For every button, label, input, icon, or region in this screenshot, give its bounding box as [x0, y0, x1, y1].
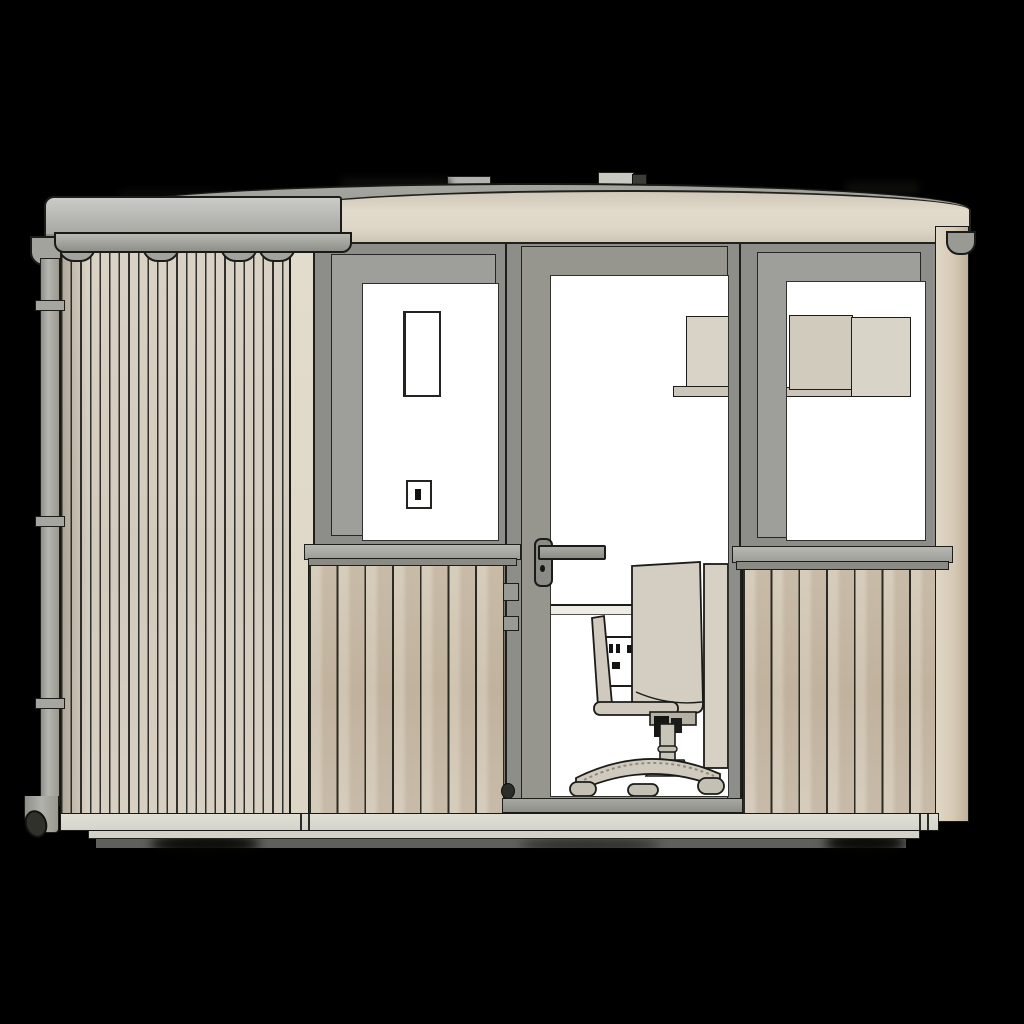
- interior-wall-cabinet: [686, 316, 729, 392]
- render-viewport: [0, 0, 1024, 1024]
- front-fascia: [283, 190, 971, 244]
- door-hinge: [503, 583, 519, 601]
- skirting-joint: [927, 814, 929, 830]
- skirting-joint: [919, 814, 921, 830]
- door-glass: [550, 275, 729, 797]
- light-switch-rocker: [415, 489, 421, 500]
- downpipe-clip: [35, 516, 65, 527]
- chair-seat-back: [632, 562, 703, 713]
- interior-wall-shelf: [673, 386, 729, 397]
- door-handle-lever: [538, 545, 606, 560]
- door-keyhole: [540, 565, 545, 572]
- left-window-apron-panel: [308, 564, 507, 817]
- downpipe: [40, 258, 60, 806]
- right-window-glass: [786, 281, 926, 541]
- chair-caster: [698, 778, 724, 794]
- right-window-sash: [757, 252, 921, 538]
- wall-cabinet-right-door: [851, 317, 911, 397]
- chair-armrest-post: [592, 616, 612, 706]
- chair-desk-slab: [704, 564, 728, 768]
- left-window-frame: [313, 236, 516, 548]
- skirting-joint: [308, 814, 310, 830]
- downpipe-clip: [35, 698, 65, 709]
- doorstop: [501, 783, 515, 799]
- chair-caster: [628, 784, 658, 796]
- left-window-sash: [331, 254, 496, 536]
- gutter-end-cap: [946, 231, 976, 255]
- wall-cabinet-left-door: [789, 315, 853, 390]
- light-switch: [406, 480, 432, 509]
- base-skirting: [60, 813, 939, 831]
- right-window-apron-panel: [742, 568, 939, 817]
- entrance-door-frame: [505, 230, 742, 814]
- office-chair: [568, 556, 728, 796]
- gutter: [54, 232, 352, 253]
- chair-gas-column: [660, 724, 675, 764]
- door-threshold: [502, 798, 743, 813]
- left-window-subsill: [308, 558, 517, 566]
- skirting-joint: [300, 814, 302, 830]
- foundation-shadow: [520, 838, 660, 852]
- corner-trim-board: [935, 226, 969, 822]
- door-leaf: [521, 246, 728, 800]
- left-wall-cladding: [60, 240, 294, 817]
- door-hinge: [503, 616, 519, 631]
- right-window-subsill: [736, 561, 949, 570]
- downpipe-clip: [35, 300, 65, 311]
- interior-framed-panel: [403, 311, 441, 397]
- right-window-frame: [739, 234, 941, 550]
- left-window-glass: [362, 283, 499, 541]
- chair-caster: [570, 782, 596, 796]
